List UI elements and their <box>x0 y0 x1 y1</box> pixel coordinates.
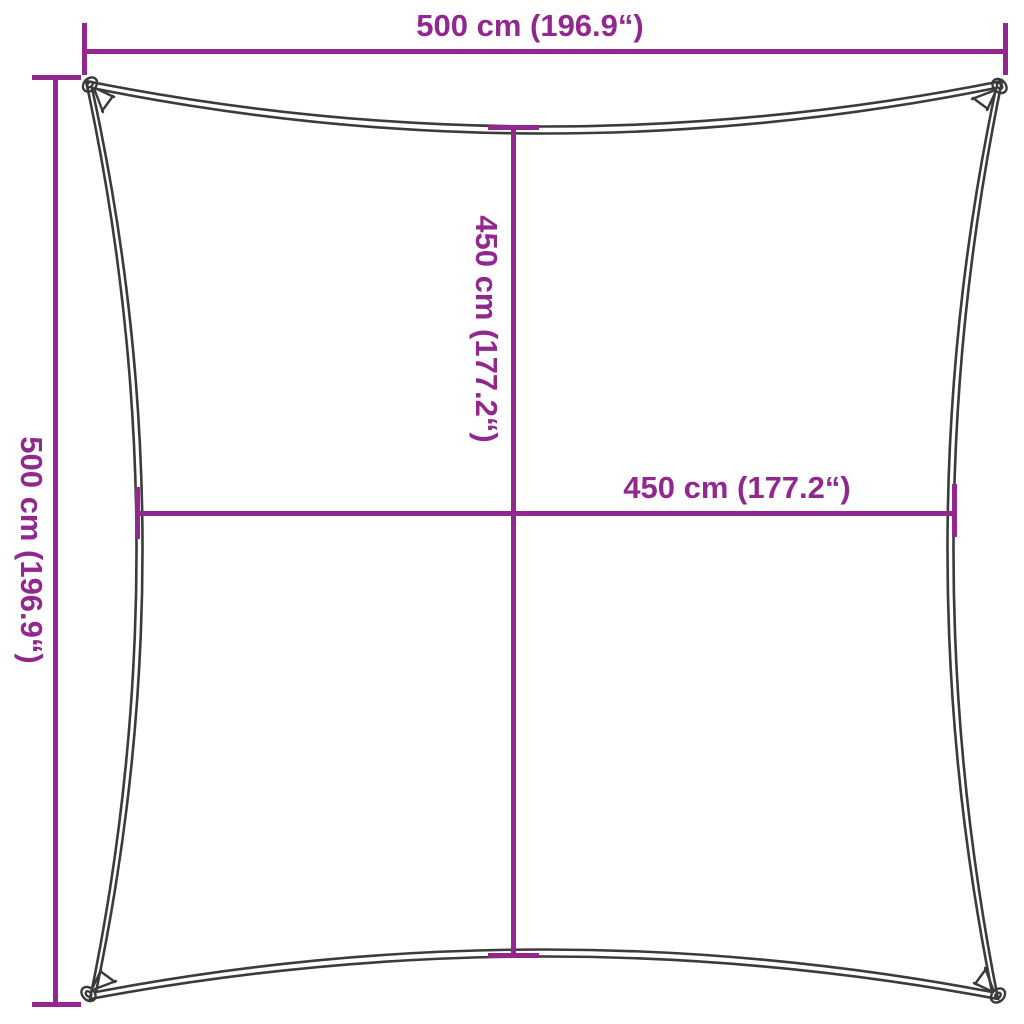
corner-grommet <box>972 76 1009 110</box>
dim-inner-horizontal-label: 450 cm (177.2“) <box>587 470 887 506</box>
dim-top-label: 500 cm (196.9“) <box>380 8 680 44</box>
dim-inner-vertical-label: 450 cm (177.2“) <box>468 189 504 469</box>
dimension-lines <box>32 23 1006 1005</box>
sail-outer-edge <box>86 81 1002 999</box>
sail-drawing <box>0 0 1024 1024</box>
shade-sail-dimension-diagram: 500 cm (196.9“) 500 cm (196.9“) 450 cm (… <box>0 0 1024 1024</box>
sail-outline <box>86 81 1002 999</box>
dim-left-label: 500 cm (196.9“) <box>13 410 49 690</box>
sail-inner-edge <box>92 88 996 992</box>
corner-grommet <box>974 968 1008 1005</box>
